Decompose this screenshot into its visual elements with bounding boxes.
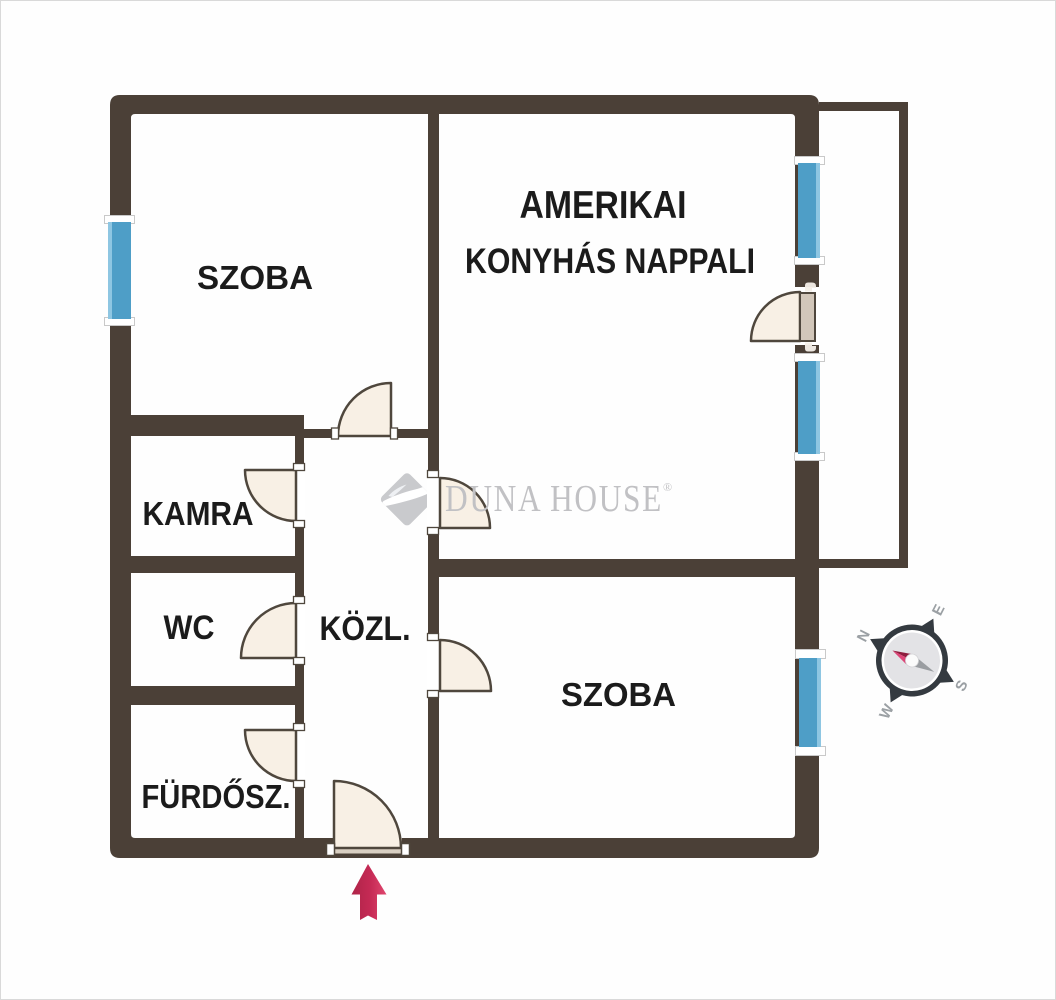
- svg-text:WC: WC: [164, 609, 215, 647]
- svg-text:KAMRA: KAMRA: [143, 495, 254, 532]
- svg-text:KONYHÁS NAPPALI: KONYHÁS NAPPALI: [465, 241, 755, 281]
- svg-text:SZOBA: SZOBA: [197, 259, 313, 296]
- svg-text:KÖZL.: KÖZL.: [320, 610, 411, 648]
- svg-text:SZOBA: SZOBA: [561, 676, 676, 713]
- svg-text:FÜRDŐSZ.: FÜRDŐSZ.: [142, 778, 291, 815]
- svg-text:DUNA HOUSE: DUNA HOUSE: [445, 478, 663, 520]
- svg-text:®: ®: [663, 480, 672, 494]
- svg-text:AMERIKAI: AMERIKAI: [520, 184, 687, 227]
